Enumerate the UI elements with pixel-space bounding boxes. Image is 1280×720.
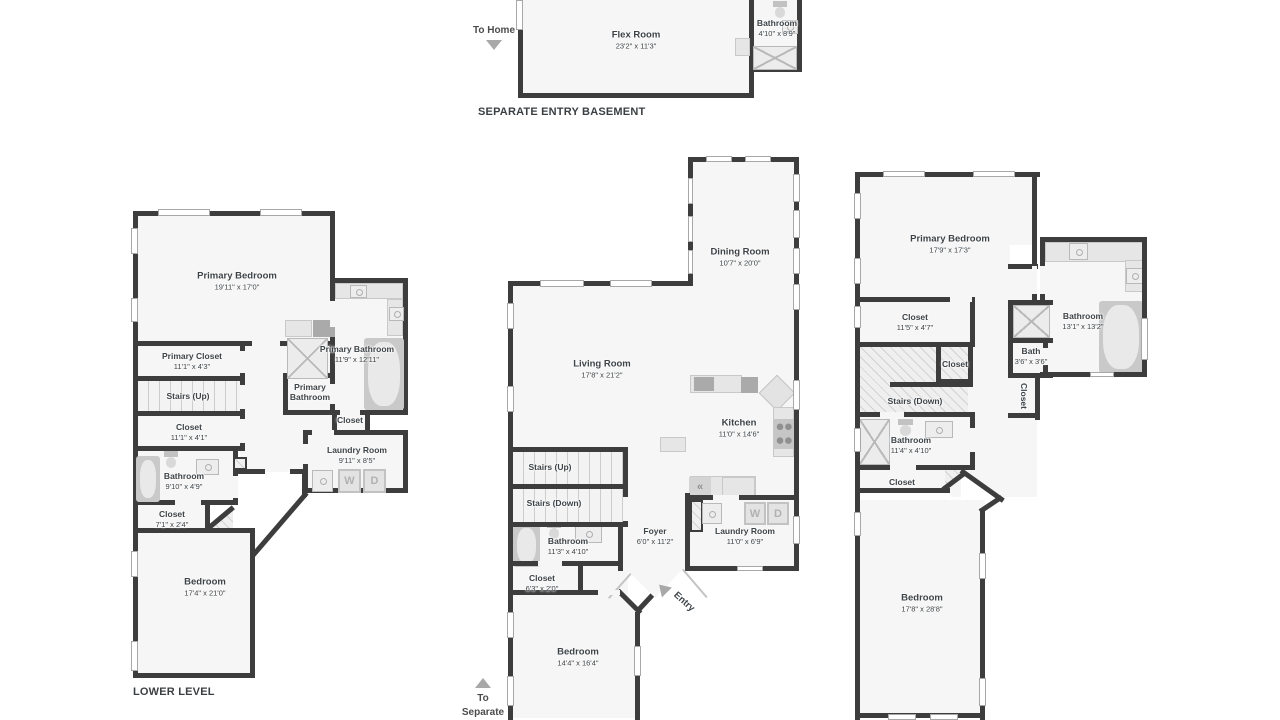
window [507,303,514,329]
door-opening [880,412,904,417]
wall [855,713,985,718]
door-opening [240,351,245,373]
counter-icon [735,38,750,56]
sink-icon [312,470,333,492]
window [260,209,302,216]
door-opening [1032,266,1037,294]
wall [508,447,628,452]
sink-icon [1126,268,1143,284]
room-label: Primary Bathroom [286,382,334,402]
room-label: Primary Bedroom 17'9" x 17'3" [910,233,990,254]
floor-area [858,493,951,497]
window [793,210,800,238]
room-label: Closet 11'5" x 4'7" [897,312,933,332]
room-label: Laundry Room 9'11" x 8'5" [327,445,387,465]
floor-area [628,450,690,598]
wall [855,172,860,502]
window [610,280,652,287]
room-label: Bath 3'6" x 3'6" [1015,346,1048,366]
room-outline [133,528,255,678]
room-label: Primary Bathroom 11'9" x 12'11" [320,344,394,364]
room-label: Flex Room 23'2" x 11'3" [612,29,661,50]
room-label: Stairs (Down) [888,396,943,406]
counter-icon [1045,242,1143,262]
wall [968,342,973,387]
room-label: Laundry Room 11'0" x 6'9" [715,526,775,546]
window [854,428,861,452]
floorplan-sheet: WD«WD Flex Room 23'2" x 11'3" Bathroom 4… [0,0,1280,720]
room-label: Dining Room 10'7" x 20'0" [710,246,769,267]
room-label: Bedroom 14'4" x 16'4" [557,646,599,667]
window [688,250,693,274]
to-home-label: To Home [473,24,515,38]
room-label: Bathroom 11'3" x 4'10" [548,536,589,556]
window [793,516,800,544]
window [854,512,861,536]
window [888,714,916,720]
door-opening [330,301,335,327]
room-label: Closet 6'3" x 2'0" [526,573,559,593]
window [854,258,861,284]
wall [508,447,513,595]
to-separate-entry-label: To Separate Entry [456,692,510,720]
door-opening [950,297,972,302]
window [793,248,800,274]
window [634,646,641,676]
wall [685,493,690,568]
appliance-icon [694,377,714,391]
door-opening [175,500,201,505]
door-opening [233,476,238,498]
wall [250,491,309,558]
room-label: Bathroom 11'4" x 4'10" [891,435,932,455]
to-separate-entry-arrow-icon [475,678,491,688]
room-label: Closet 11'1" x 4'1" [171,422,207,442]
window [973,171,1015,177]
wall [1008,300,1053,305]
floor-area [1010,245,1034,264]
entry-label: Entry [671,590,697,615]
door-opening [598,590,620,595]
window [930,714,958,720]
window [793,380,800,410]
door-leaf [682,569,708,598]
window [979,678,986,706]
wall [508,561,623,566]
wall [1008,413,1040,418]
toilet-icon [897,419,914,436]
wall [855,488,950,493]
room-label: Closet 7'1" x 2'4" [156,509,189,529]
shower-icon [859,419,890,465]
room-label: Stairs (Up) [529,462,572,472]
level-title-basement: SEPARATE ENTRY BASEMENT [478,106,645,118]
washer-icon: W [744,502,766,525]
window [688,178,693,204]
window [1090,372,1114,377]
sink-icon [702,503,722,524]
sink-icon [389,307,404,321]
window [688,216,693,242]
room-label: Closet [942,359,968,369]
wall [688,157,799,162]
appliance-icon [741,377,758,393]
room-label: Bathroom 13'1" x 13'2" [1062,311,1103,331]
sink-icon [350,285,367,298]
wall [685,495,799,500]
dryer-icon: D [363,469,386,493]
wall [1008,300,1013,378]
window [1141,318,1148,360]
counter-icon [660,437,686,452]
room-label: Bedroom 17'8" x 28'8" [901,592,943,613]
door-opening [240,385,245,409]
window [854,306,861,328]
room-label: Stairs (Down) [527,498,582,508]
door-opening [240,419,245,443]
door-opening [252,341,280,346]
dryer-icon: D [767,502,789,525]
room-label: Bathroom 4'10" x 8'9" [757,18,797,38]
window [158,209,210,216]
door-opening [970,428,975,452]
bathtub-icon [136,456,160,502]
door-opening [890,465,916,470]
window [854,193,861,219]
window [793,284,800,310]
room-label: Foyer 6'0" x 11'2" [637,526,673,546]
window [131,551,138,577]
door-opening [623,497,628,521]
window [131,641,138,671]
room-label: Closet [337,415,363,425]
window [131,228,138,254]
toilet-icon [163,451,179,468]
wall [636,593,654,612]
window [979,553,986,579]
wall [1040,237,1147,242]
stove-icon [774,419,794,449]
window [131,298,138,322]
room-label: Closet [889,477,915,487]
wall [508,281,693,286]
room-label: Living Room 17'8" x 21'2" [573,358,631,379]
door-opening [713,495,739,500]
toilet-icon [772,1,788,18]
window [507,386,514,412]
window [706,156,732,162]
shower-icon [753,46,797,70]
room-label: Primary Bedroom 19'11" x 17'0" [197,270,277,291]
washer-icon: W [338,469,361,493]
fridge-icon: « [689,477,711,497]
wall [508,522,623,527]
room-label: Kitchen 11'0" x 14'6" [719,417,760,438]
window [516,0,523,30]
level-title-lower: LOWER LEVEL [133,686,215,698]
window [540,280,584,287]
wall [855,412,975,417]
wall [855,342,975,347]
window [737,566,763,571]
door-opening [1040,266,1045,294]
counter-icon [335,283,403,299]
door-opening [312,430,334,435]
room-label: Primary Closet 11'1" x 4'3" [162,351,222,371]
shower-icon [1013,305,1050,338]
room-label: Closet [1019,383,1029,409]
wall [233,469,265,474]
room-label: Bathroom 9'10" x 4'9" [164,471,204,491]
counter-icon [285,320,312,337]
window [793,174,800,202]
room-label: Stairs (Up) [167,391,210,401]
door-opening [303,444,308,464]
door-opening [538,561,562,566]
window [507,612,514,638]
bathtub-icon [1099,301,1143,373]
wall [618,522,623,571]
wall [970,297,975,347]
to-home-arrow-icon [486,40,502,50]
wall [508,484,623,489]
window [745,156,771,162]
window [883,171,925,177]
room-label: Bedroom 17'4" x 21'0" [184,576,226,597]
sink-icon [1069,243,1088,260]
wall [890,382,973,387]
